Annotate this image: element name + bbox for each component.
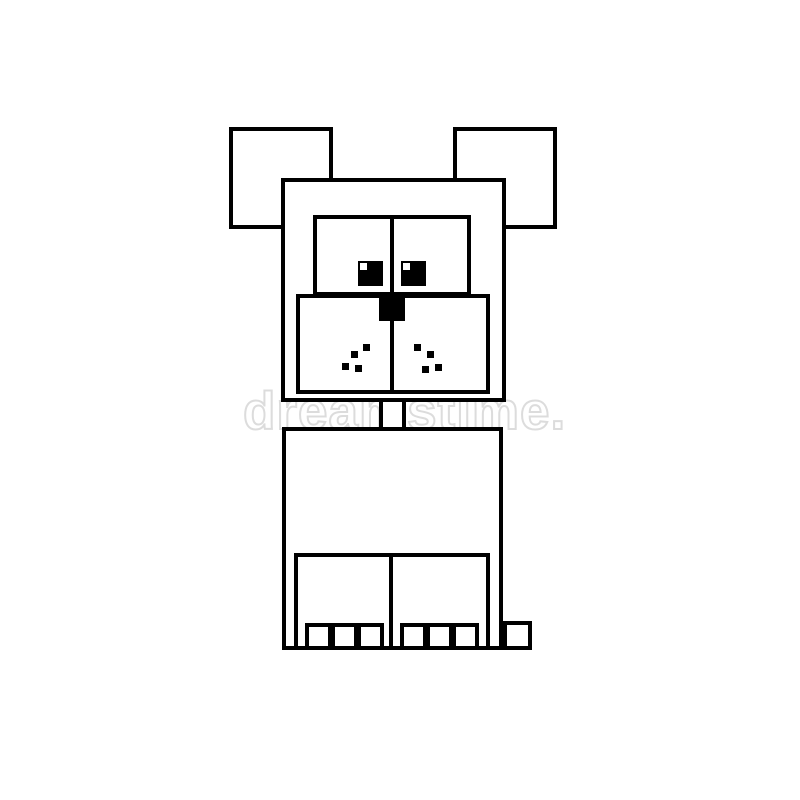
whisker-dot [414, 344, 421, 351]
illustration-canvas: dreamstime. ® [0, 0, 800, 800]
right-eye-highlight [403, 263, 410, 270]
toe [452, 623, 479, 650]
toe [331, 623, 358, 650]
whisker-dot [342, 363, 349, 370]
dog-right-eye [401, 261, 426, 286]
toe [426, 623, 453, 650]
whisker-dot [351, 351, 358, 358]
dog-nose [379, 294, 405, 321]
whisker-dot [422, 366, 429, 373]
eye-panel-divider [390, 215, 394, 296]
whisker-dot [427, 351, 434, 358]
toe [400, 623, 427, 650]
left-eye-highlight [360, 263, 367, 270]
dog-hind-paw [503, 621, 532, 650]
toe [305, 623, 332, 650]
whisker-dot [355, 365, 362, 372]
whisker-dot [435, 364, 442, 371]
dog-left-eye [358, 261, 383, 286]
toe [357, 623, 384, 650]
whisker-dot [363, 344, 370, 351]
